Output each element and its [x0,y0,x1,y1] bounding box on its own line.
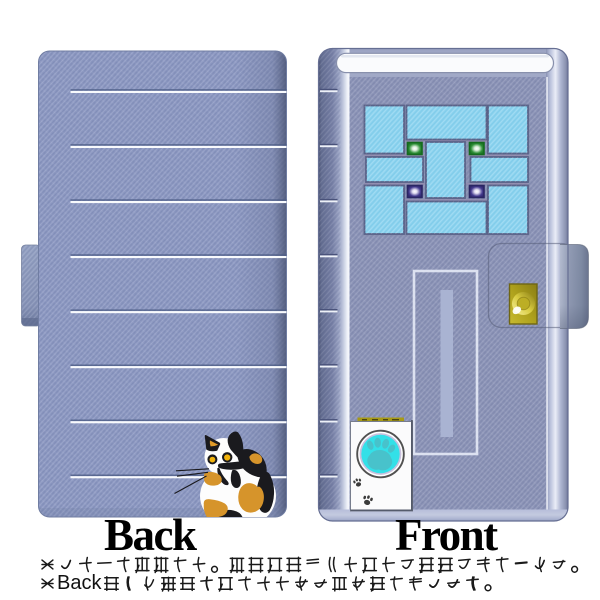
svg-text:Back: Back [57,572,102,594]
